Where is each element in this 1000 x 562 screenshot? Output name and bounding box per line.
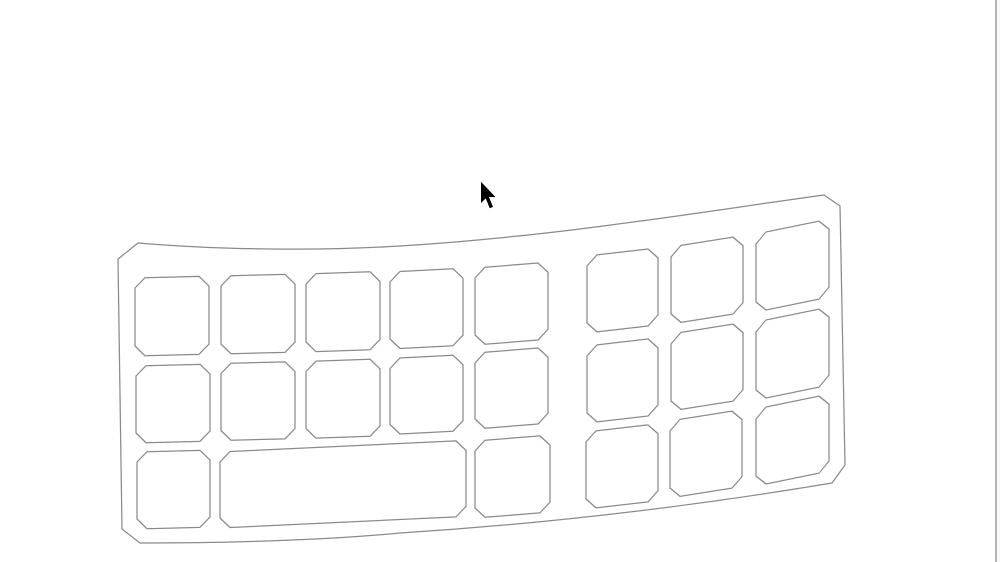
key-left-r2-c2: [221, 362, 295, 441]
key-right-r2-c3: [756, 307, 829, 400]
key-left-r1-c4: [390, 268, 463, 349]
key-right-r1-c1: [587, 248, 658, 333]
key-right-r2-c2: [671, 323, 743, 411]
keyboard-line-drawing: [0, 0, 1000, 562]
key-left-r2-c1: [136, 364, 210, 443]
key-left-r1-c2: [221, 274, 295, 354]
drawing-canvas[interactable]: [0, 0, 1000, 562]
key-right-r2-c1: [587, 338, 658, 423]
key-left-r2-c5: [475, 347, 548, 429]
key-left-r1-c3: [306, 271, 380, 352]
key-spacebar: [220, 440, 466, 528]
key-right-r1-c3: [756, 219, 829, 312]
keyboard-body-outline: [118, 195, 845, 543]
key-left-r2-c4: [390, 355, 463, 435]
key-left-r3-c5: [475, 435, 550, 518]
key-left-r2-c3: [306, 359, 380, 439]
key-right-r3-c3: [756, 394, 829, 486]
key-left-r3-c1: [137, 450, 210, 529]
mouse-cursor-icon: [481, 181, 497, 209]
key-right-r1-c2: [671, 236, 743, 324]
key-right-r3-c2: [670, 410, 742, 498]
key-left-r1-c1: [135, 276, 209, 356]
key-right-r3-c1: [586, 424, 658, 509]
key-left-r1-c5: [475, 262, 548, 345]
